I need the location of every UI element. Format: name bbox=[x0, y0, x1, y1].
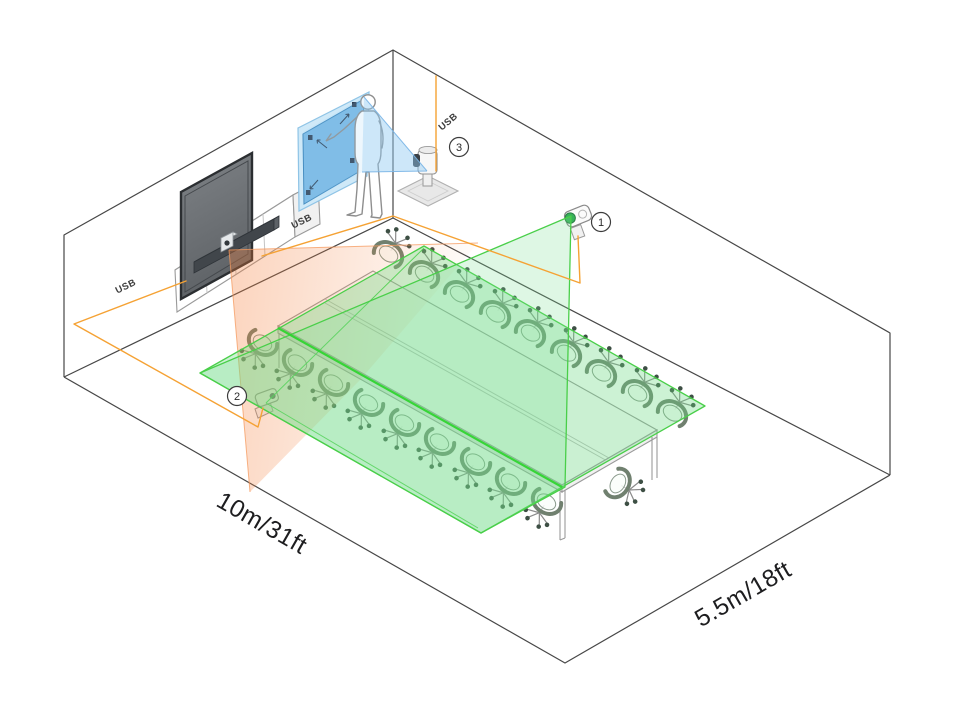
chair bbox=[604, 467, 649, 511]
usb-label: USB bbox=[437, 111, 461, 133]
room-width-label: 5.5m/18ft bbox=[690, 556, 796, 633]
table-leg-front bbox=[560, 490, 565, 540]
video-bar-lens-icon bbox=[224, 240, 229, 245]
content-camera-badge-number: 3 bbox=[456, 142, 462, 154]
conference-room-diagram: USB USB USB 10m/31ft 5.5m/18ft 1 2 3 bbox=[0, 0, 959, 714]
content-camera-badge: 3 bbox=[450, 138, 469, 157]
table-leg-right bbox=[652, 437, 657, 480]
usb-label: USB bbox=[114, 277, 138, 296]
camera-1-badge-number: 1 bbox=[598, 217, 604, 229]
room-length-label: 10m/31ft bbox=[212, 487, 312, 560]
camera-2-badge: 2 bbox=[228, 387, 247, 406]
camera-2-badge-number: 2 bbox=[234, 391, 240, 403]
camera-1-badge: 1 bbox=[592, 213, 611, 232]
